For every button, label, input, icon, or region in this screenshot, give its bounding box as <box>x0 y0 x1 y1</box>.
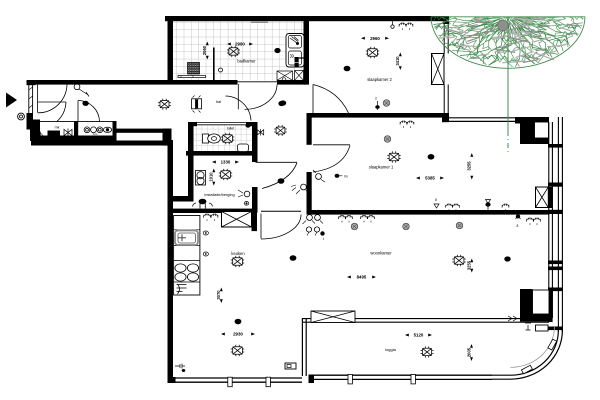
svg-text:2960: 2960 <box>370 36 380 41</box>
svg-text:5120: 5120 <box>414 333 424 338</box>
svg-text:2060: 2060 <box>202 45 207 55</box>
svg-text:mk: mk <box>55 126 60 130</box>
svg-text:tm: tm <box>344 174 348 178</box>
svg-text:slaapkamer 2: slaapkamer 2 <box>367 77 392 82</box>
svg-text:2: 2 <box>375 97 377 101</box>
svg-text:toilet: toilet <box>227 126 235 130</box>
svg-text:wm: wm <box>93 132 98 136</box>
svg-text:2005: 2005 <box>466 347 471 357</box>
svg-text:5385: 5385 <box>425 176 435 181</box>
svg-text:hal: hal <box>216 99 221 104</box>
svg-text:3255: 3255 <box>467 161 472 171</box>
svg-text:woonkamer: woonkamer <box>370 251 392 256</box>
svg-text:slaapkamer 1: slaapkamer 1 <box>369 165 394 170</box>
svg-text:3410: 3410 <box>395 56 400 66</box>
svg-text:8: 8 <box>435 198 437 202</box>
svg-text:keuken: keuken <box>231 251 245 256</box>
svg-text:8495: 8495 <box>357 275 367 280</box>
svg-text:2930: 2930 <box>233 332 243 337</box>
svg-text:3255: 3255 <box>467 260 472 270</box>
svg-text:2990: 2990 <box>235 42 245 47</box>
svg-text:1910: 1910 <box>209 172 214 182</box>
svg-text:t: t <box>323 237 324 241</box>
svg-text:loggia: loggia <box>385 347 396 352</box>
svg-text:1330: 1330 <box>221 160 231 165</box>
svg-text:3070: 3070 <box>216 290 221 300</box>
svg-text:badkamer: badkamer <box>237 59 256 64</box>
svg-text:installatie/berging: installatie/berging <box>204 192 234 197</box>
svg-text:8: 8 <box>517 224 519 228</box>
